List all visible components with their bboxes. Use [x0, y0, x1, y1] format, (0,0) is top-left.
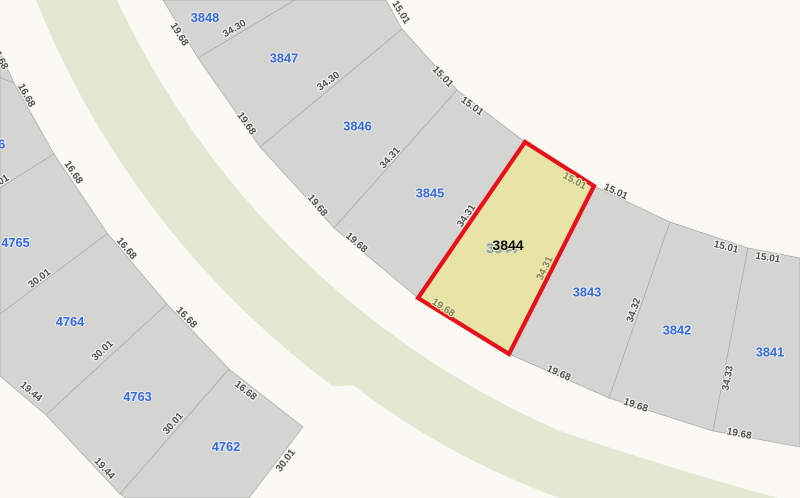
svg-text:4765: 4765 [1, 235, 29, 250]
svg-text:4764: 4764 [56, 314, 85, 329]
svg-text:3846: 3846 [343, 118, 371, 133]
svg-text:3847: 3847 [270, 51, 298, 66]
svg-text:3841: 3841 [756, 345, 784, 360]
svg-text:3842: 3842 [663, 323, 691, 338]
svg-text:4766: 4766 [0, 137, 5, 152]
svg-text:3844: 3844 [492, 237, 523, 253]
svg-text:4762: 4762 [212, 439, 240, 454]
svg-text:3845: 3845 [416, 186, 444, 201]
svg-text:3843: 3843 [573, 285, 601, 300]
svg-text:3848: 3848 [191, 10, 219, 25]
svg-text:4763: 4763 [123, 389, 151, 404]
